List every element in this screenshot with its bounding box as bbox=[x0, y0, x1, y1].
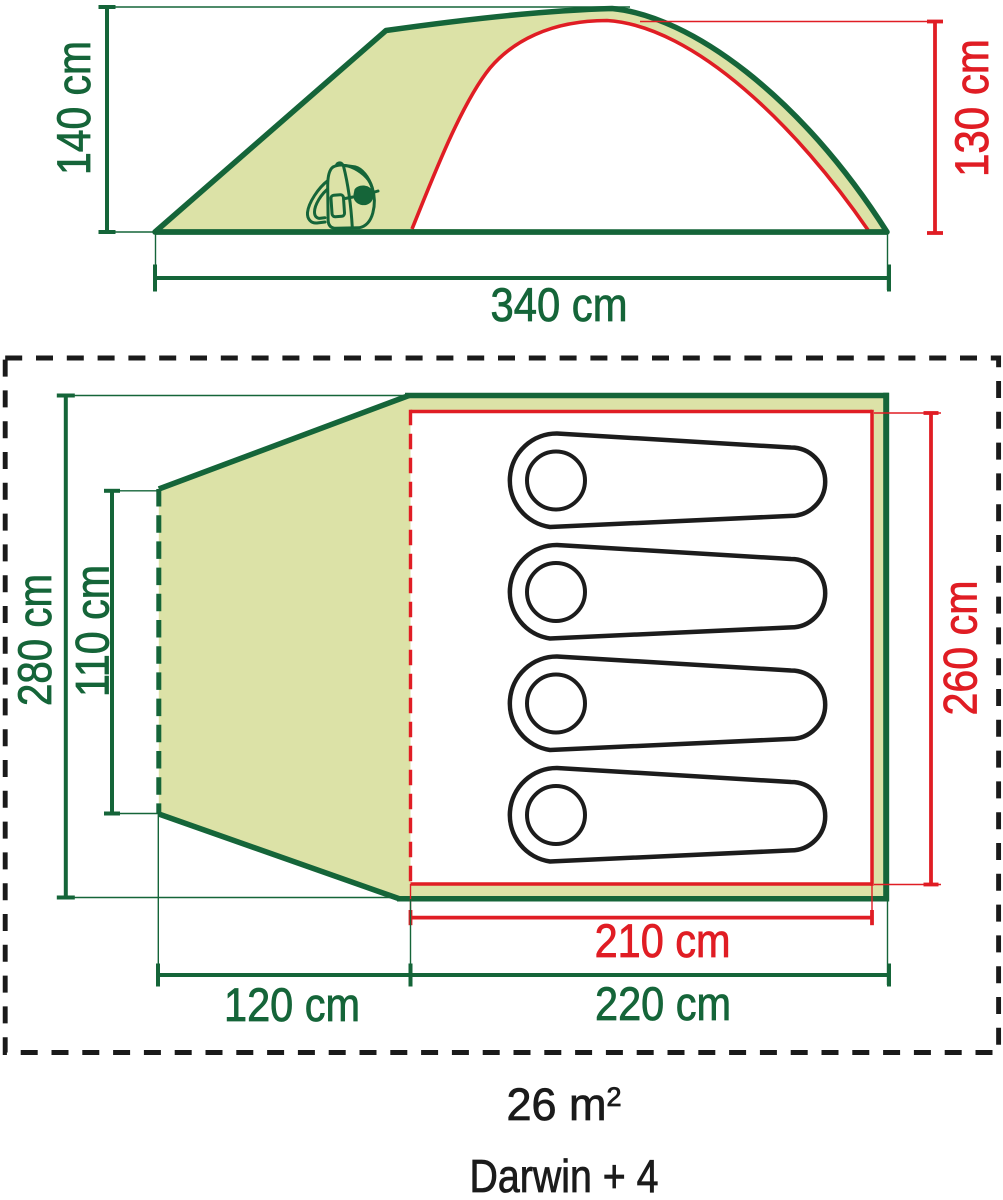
svg-text:Darwin + 4: Darwin + 4 bbox=[470, 1150, 659, 1200]
svg-text:140 cm: 140 cm bbox=[47, 41, 100, 175]
svg-text:110 cm: 110 cm bbox=[66, 565, 119, 697]
svg-text:210 cm: 210 cm bbox=[595, 914, 731, 967]
svg-text:280 cm: 280 cm bbox=[8, 574, 61, 706]
svg-text:26 m2: 26 m2 bbox=[506, 1079, 621, 1130]
svg-text:120 cm: 120 cm bbox=[224, 978, 360, 1031]
svg-text:260 cm: 260 cm bbox=[934, 581, 987, 716]
svg-text:130 cm: 130 cm bbox=[945, 39, 998, 177]
svg-text:220 cm: 220 cm bbox=[595, 977, 731, 1030]
svg-text:340 cm: 340 cm bbox=[491, 278, 628, 331]
